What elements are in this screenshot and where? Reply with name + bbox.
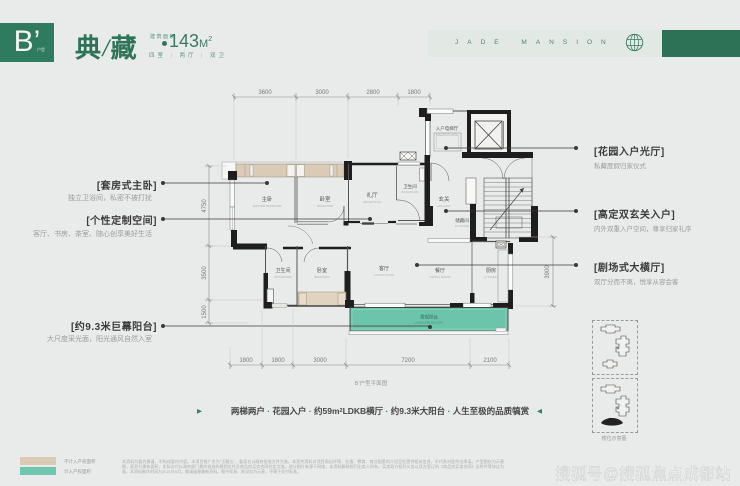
svg-text:餐厅: 餐厅 <box>435 267 445 274</box>
svg-text:KITCHEN: KITCHEN <box>484 275 497 279</box>
svg-text:景观阳台: 景观阳台 <box>420 314 438 321</box>
svg-text:卧室: 卧室 <box>317 267 327 274</box>
svg-text:玄关: 玄关 <box>438 195 450 203</box>
svg-text:礼厅: 礼厅 <box>366 191 378 199</box>
svg-text:LIVING ROOM: LIVING ROOM <box>374 273 395 277</box>
svg-text:B’户型平面图: B’户型平面图 <box>355 379 388 387</box>
svg-text:1800: 1800 <box>271 358 285 364</box>
svg-text:ELEVATOR HALL: ELEVATOR HALL <box>436 132 459 136</box>
svg-text:3500: 3500 <box>202 266 208 280</box>
svg-text:3000: 3000 <box>315 90 329 96</box>
svg-text:BEDROOM: BEDROOM <box>314 275 330 279</box>
svg-text:STORAGE: STORAGE <box>455 224 470 228</box>
svg-text:3000: 3000 <box>313 358 327 364</box>
svg-text:HALLWAY: HALLWAY <box>437 204 451 208</box>
svg-text:3900: 3900 <box>545 265 551 279</box>
svg-text:DINING ROOM: DINING ROOM <box>430 275 451 279</box>
svg-text:1800: 1800 <box>239 358 253 364</box>
svg-text:1800: 1800 <box>407 90 421 96</box>
svg-text:卧室: 卧室 <box>319 195 331 203</box>
svg-text:储藏间: 储藏间 <box>455 217 469 224</box>
svg-text:厨房: 厨房 <box>486 267 496 274</box>
svg-text:主卧: 主卧 <box>261 195 273 203</box>
svg-text:RECEPTION: RECEPTION <box>363 200 381 204</box>
svg-text:客厅: 客厅 <box>379 265 389 272</box>
svg-text:3600: 3600 <box>258 90 272 96</box>
svg-text:BATHROOM: BATHROOM <box>401 190 419 194</box>
svg-text:BEDROOM: BEDROOM <box>317 204 333 208</box>
svg-text:卫生间: 卫生间 <box>275 267 290 274</box>
svg-text:MASTER BEDROOM: MASTER BEDROOM <box>253 204 282 208</box>
svg-text:LANDSCAPE BALCONY: LANDSCAPE BALCONY <box>415 321 444 325</box>
svg-text:2800: 2800 <box>366 90 380 96</box>
svg-text:BATHROOM: BATHROOM <box>274 275 292 279</box>
svg-text:4750: 4750 <box>202 199 208 213</box>
svg-text:卫生间: 卫生间 <box>403 183 417 190</box>
svg-text:2100: 2100 <box>483 358 497 364</box>
svg-text:入户电梯厅: 入户电梯厅 <box>436 125 459 132</box>
svg-text:1500: 1500 <box>202 305 208 319</box>
svg-text:7200: 7200 <box>401 358 415 364</box>
